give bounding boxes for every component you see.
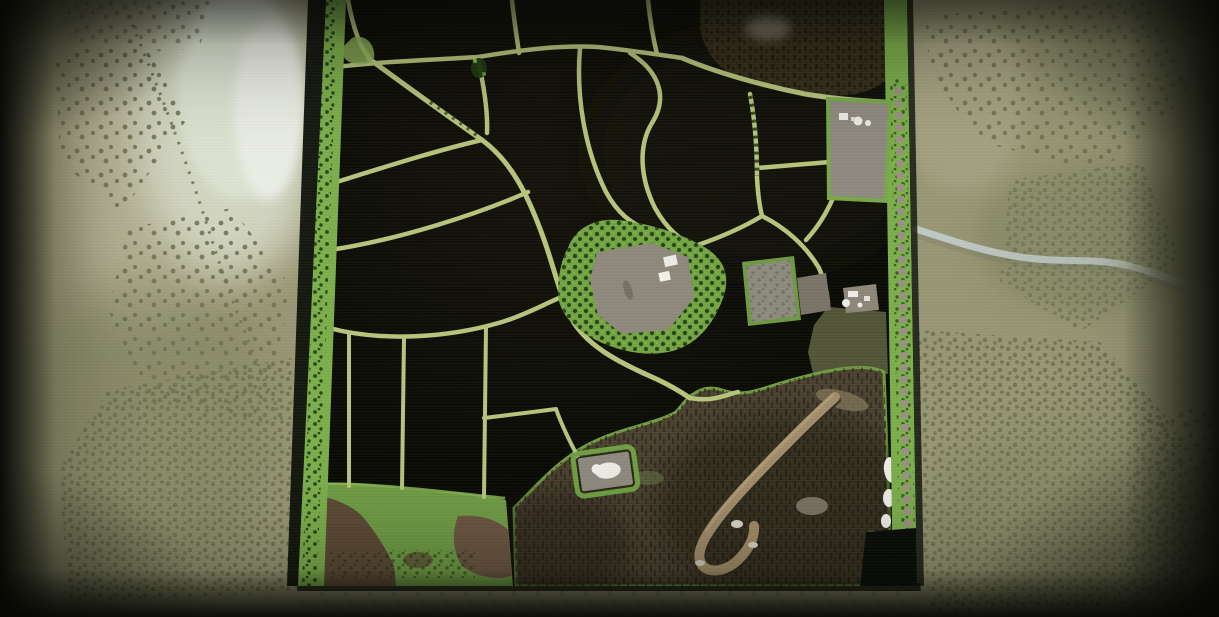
map-screenshot: [0, 0, 1219, 617]
lot-ne-building: [839, 113, 848, 120]
road-south-vertical-2: [484, 327, 486, 497]
cluster-tank-2: [858, 303, 863, 308]
lot-northeast: [826, 97, 892, 203]
farm-cluster-pad: [843, 284, 879, 313]
forest-clearing: [745, 16, 791, 40]
grass-southwest: [298, 483, 513, 586]
map-canvas: [0, 0, 1219, 617]
road-south-vertical-1: [402, 338, 404, 488]
parking-south: [572, 446, 638, 497]
cluster-tank-1: [842, 299, 850, 307]
dark-corner-se: [860, 528, 918, 586]
cluster-building: [848, 291, 858, 297]
game-map[interactable]: [287, 0, 930, 600]
meadow-trees: [330, 550, 475, 578]
lot-ne-silo-2: [865, 120, 871, 126]
lot-brown: [797, 273, 831, 315]
